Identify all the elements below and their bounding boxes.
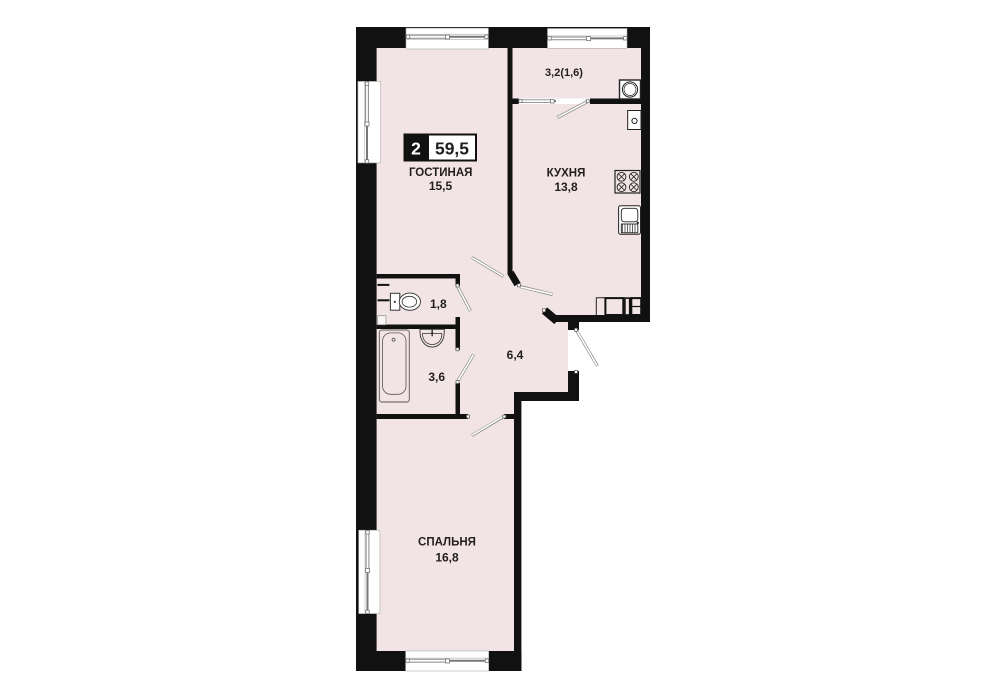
svg-text:16,8: 16,8 [435, 551, 459, 565]
svg-text:3,2(1,6): 3,2(1,6) [545, 67, 583, 79]
svg-text:1,8: 1,8 [430, 297, 447, 311]
svg-text:6,4: 6,4 [507, 348, 524, 362]
svg-text:СПАЛЬНЯ: СПАЛЬНЯ [418, 537, 476, 549]
svg-text:ГОСТИНАЯ: ГОСТИНАЯ [409, 167, 473, 179]
svg-text:15,5: 15,5 [429, 179, 453, 193]
svg-text:КУХНЯ: КУХНЯ [547, 168, 586, 180]
svg-text:3,6: 3,6 [428, 370, 445, 384]
svg-text:59,5: 59,5 [435, 138, 469, 158]
svg-text:13,8: 13,8 [554, 180, 578, 194]
svg-text:2: 2 [411, 138, 421, 158]
